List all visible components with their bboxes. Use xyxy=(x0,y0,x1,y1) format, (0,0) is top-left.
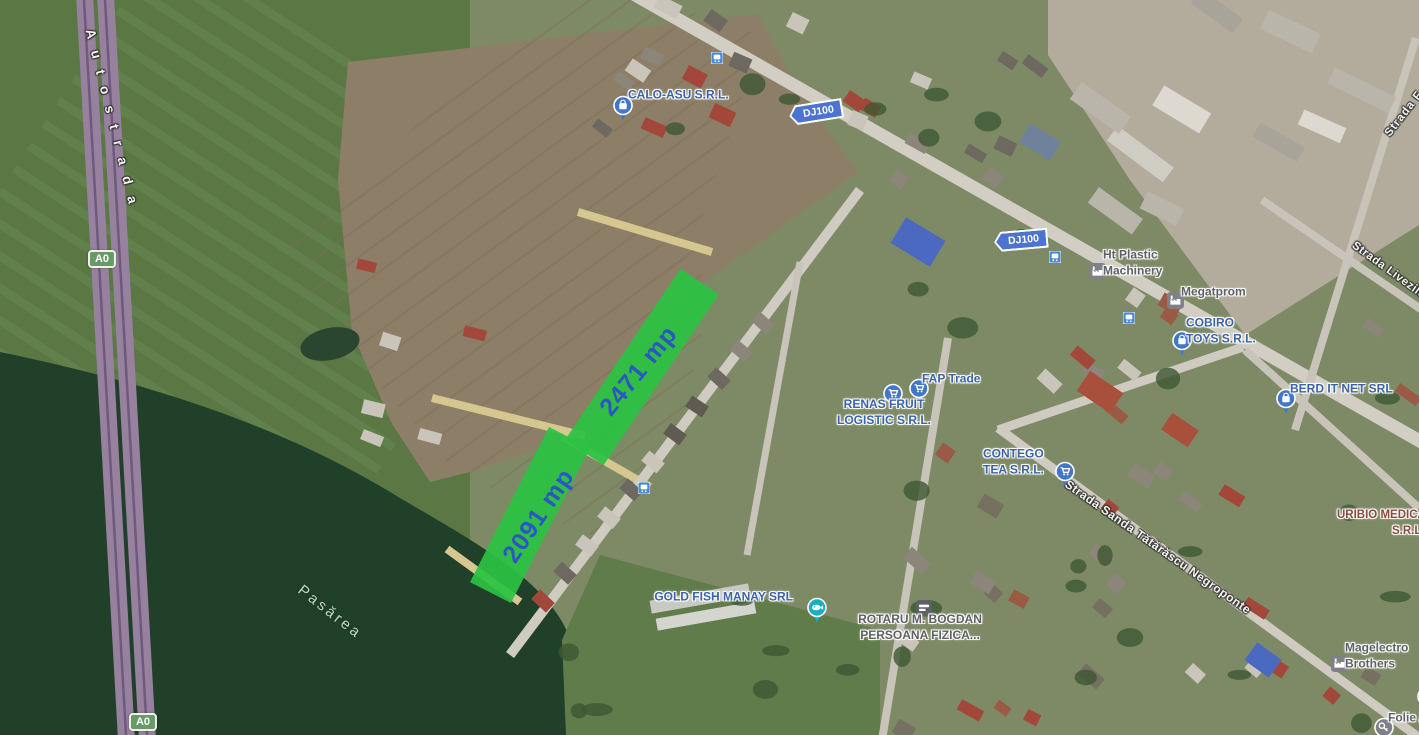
megatprom-label[interactable]: Megatprom xyxy=(1181,284,1246,300)
shield-border: DJ100 xyxy=(993,228,1048,253)
calo-asu-label[interactable]: CALO-ASU S.R.L. xyxy=(628,87,729,103)
shield-label: DJ100 xyxy=(790,100,842,124)
cobiro-toys-label[interactable]: COBIROTOYS S.R.L. xyxy=(1186,316,1256,347)
place-label-line: CONTEGO xyxy=(983,447,1044,463)
shield-border: DJ100 xyxy=(788,98,844,126)
place-label-line: Ht Plastic xyxy=(1103,248,1162,264)
place-label-line: COBIRO xyxy=(1186,316,1256,332)
street-label: Strada F xyxy=(1383,89,1419,139)
contego-tea-label[interactable]: CONTEGOTEA S.R.L. xyxy=(983,447,1044,478)
water-label: Pasărea xyxy=(294,582,365,643)
place-label-line: PERSOANA FIZICA... xyxy=(858,628,982,644)
road-badge-dj100: DJ100 xyxy=(993,228,1048,253)
rotaru-m-bogdan-label[interactable]: ROTARU M. BOGDANPERSOANA FIZICA... xyxy=(858,612,982,643)
road-badge-a0: A0 xyxy=(88,250,116,268)
fap-trade-label[interactable]: FAP Trade xyxy=(922,371,980,387)
place-label-line: RENAS FRUIT xyxy=(837,397,931,413)
uribio-medica-label[interactable]: URIBIO MEDICAS.R.L. xyxy=(1337,508,1419,539)
ht-plastic-machinery-label[interactable]: Ht PlasticMachinery xyxy=(1103,248,1162,279)
place-label-line: LOGISTIC S.R.L. xyxy=(837,413,931,429)
place-label-line: CALO-ASU S.R.L. xyxy=(628,87,729,103)
place-label-line: Megatprom xyxy=(1181,284,1246,300)
label-layer: A0A0DJ100DJ100AutostradaStrada FStrada L… xyxy=(0,0,1419,735)
place-label-line: BERD IT NET SRL xyxy=(1290,381,1393,397)
gold-fish-manay-label[interactable]: GOLD FISH MANAY SRL xyxy=(654,589,793,605)
place-label-line: Brothers xyxy=(1345,656,1408,672)
road-badge-dj100: DJ100 xyxy=(788,98,844,126)
folie-label[interactable]: Folie A xyxy=(1388,710,1419,726)
place-label-line: ROTARU M. BOGDAN xyxy=(858,612,982,628)
place-label-line: Folie A xyxy=(1388,710,1419,726)
shield-label: DJ100 xyxy=(995,230,1046,250)
magelectro-brothers-label[interactable]: MagelectroBrothers xyxy=(1345,641,1408,672)
place-label-line: Magelectro xyxy=(1345,641,1408,657)
street-label: Autostrada xyxy=(83,27,144,216)
place-label-line: Machinery xyxy=(1103,263,1162,279)
road-badge-a0: A0 xyxy=(129,713,157,731)
place-label-line: GOLD FISH MANAY SRL xyxy=(654,589,793,605)
renas-fruit-logistic-label[interactable]: RENAS FRUITLOGISTIC S.R.L. xyxy=(837,397,931,428)
map-stage: 2471 mp2091 mp A0A0DJ100DJ100AutostradaS… xyxy=(0,0,1419,735)
place-label-line: TOYS S.R.L. xyxy=(1186,331,1256,347)
berd-it-net-label[interactable]: BERD IT NET SRL xyxy=(1290,381,1393,397)
place-label-line: TEA S.R.L. xyxy=(983,462,1044,478)
place-label-line: URIBIO MEDICA xyxy=(1337,508,1419,524)
place-label-line: S.R.L. xyxy=(1392,524,1419,540)
street-label: Strada Sanda Tătărăscu Negroponte xyxy=(1062,477,1253,617)
place-label-line: FAP Trade xyxy=(922,371,980,387)
street-label: Strada Livezilor xyxy=(1350,240,1419,305)
